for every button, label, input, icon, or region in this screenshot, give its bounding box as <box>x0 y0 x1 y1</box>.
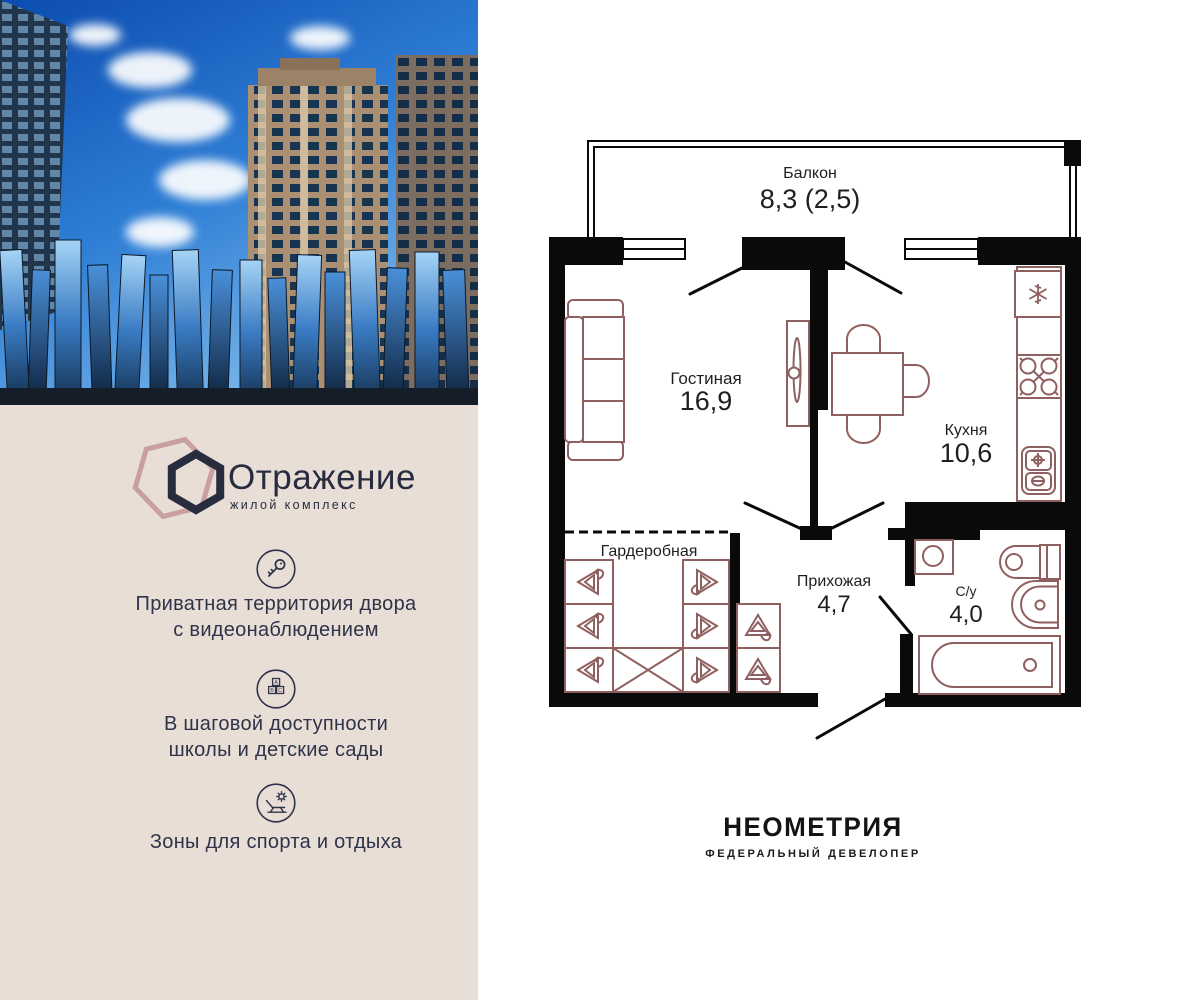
feature-line: с видеонаблюдением <box>36 617 516 643</box>
room-area-living: 16,9 <box>680 386 733 416</box>
washing-machine-icon <box>915 540 953 574</box>
brand-subtitle: жилой комплекс <box>230 498 358 512</box>
hexagon-logo-icon <box>130 430 220 526</box>
room-name-bathroom: С/у <box>956 583 977 599</box>
bathroom-sink-icon <box>1012 581 1058 628</box>
floorplan-area: Балкон 8,3 (2,5) Гостиная 16,9 Кухня 10,… <box>478 0 1200 1000</box>
bathtub-icon <box>919 636 1060 694</box>
brand-panel: Отражение жилой комплекс Приватная терри… <box>0 405 478 1000</box>
walls <box>549 140 1081 707</box>
abc-blocks-icon: А В С <box>256 669 296 709</box>
feature-line: Зоны для спорта и отдыха <box>36 829 516 855</box>
hero-photo <box>0 0 478 405</box>
sun-lounger-icon <box>256 783 296 823</box>
room-area-balcony: 8,3 (2,5) <box>760 184 861 214</box>
tv-unit <box>787 321 809 426</box>
room-name-hallway: Прихожая <box>797 573 871 590</box>
svg-text:С: С <box>278 688 282 694</box>
key-icon <box>256 549 296 589</box>
brand-title: Отражение <box>228 458 416 497</box>
floorplan: Балкон 8,3 (2,5) Гостиная 16,9 Кухня 10,… <box>545 135 1085 765</box>
feature-line: В шаговой доступности <box>36 711 516 737</box>
feature-schools-text: В шаговой доступности школы и детские са… <box>36 711 516 763</box>
developer-name: НЕОМЕТРИЯ <box>688 812 938 844</box>
feature-line: школы и детские сады <box>36 737 516 763</box>
kitchen-sink-icon <box>1022 447 1055 494</box>
developer-tagline: ФЕДЕРАЛЬНЫЙ ДЕВЕЛОПЕР <box>688 848 938 860</box>
room-name-balcony: Балкон <box>783 165 837 182</box>
room-area-hallway: 4,7 <box>817 591 850 618</box>
real-estate-flyer: Отражение жилой комплекс Приватная терри… <box>0 0 1200 1000</box>
brand-logo: Отражение жилой комплекс <box>130 432 440 527</box>
toilet-icon <box>1000 545 1060 579</box>
svg-text:А: А <box>274 680 278 686</box>
room-name-wardrobe: Гардеробная <box>601 543 698 560</box>
sofa <box>565 300 624 460</box>
svg-text:В: В <box>270 688 274 694</box>
stove-icon <box>1017 355 1061 398</box>
room-area-kitchen: 10,6 <box>940 438 993 468</box>
fridge-icon <box>1015 271 1061 317</box>
developer-logo: НЕОМЕТРИЯ ФЕДЕРАЛЬНЫЙ ДЕВЕЛОПЕР <box>688 812 938 860</box>
feature-security-text: Приватная территория двора с видеонаблюд… <box>36 591 516 643</box>
feature-line: Приватная территория двора <box>36 591 516 617</box>
left-column: Отражение жилой комплекс Приватная терри… <box>0 0 478 1000</box>
feature-sport-text: Зоны для спорта и отдыха <box>36 829 516 855</box>
navy-hexagon <box>172 454 220 510</box>
ground <box>0 388 478 405</box>
dining-table <box>832 325 929 443</box>
wardrobe-units <box>565 560 780 692</box>
room-area-bathroom: 4,0 <box>949 601 982 628</box>
room-name-kitchen: Кухня <box>945 422 988 439</box>
